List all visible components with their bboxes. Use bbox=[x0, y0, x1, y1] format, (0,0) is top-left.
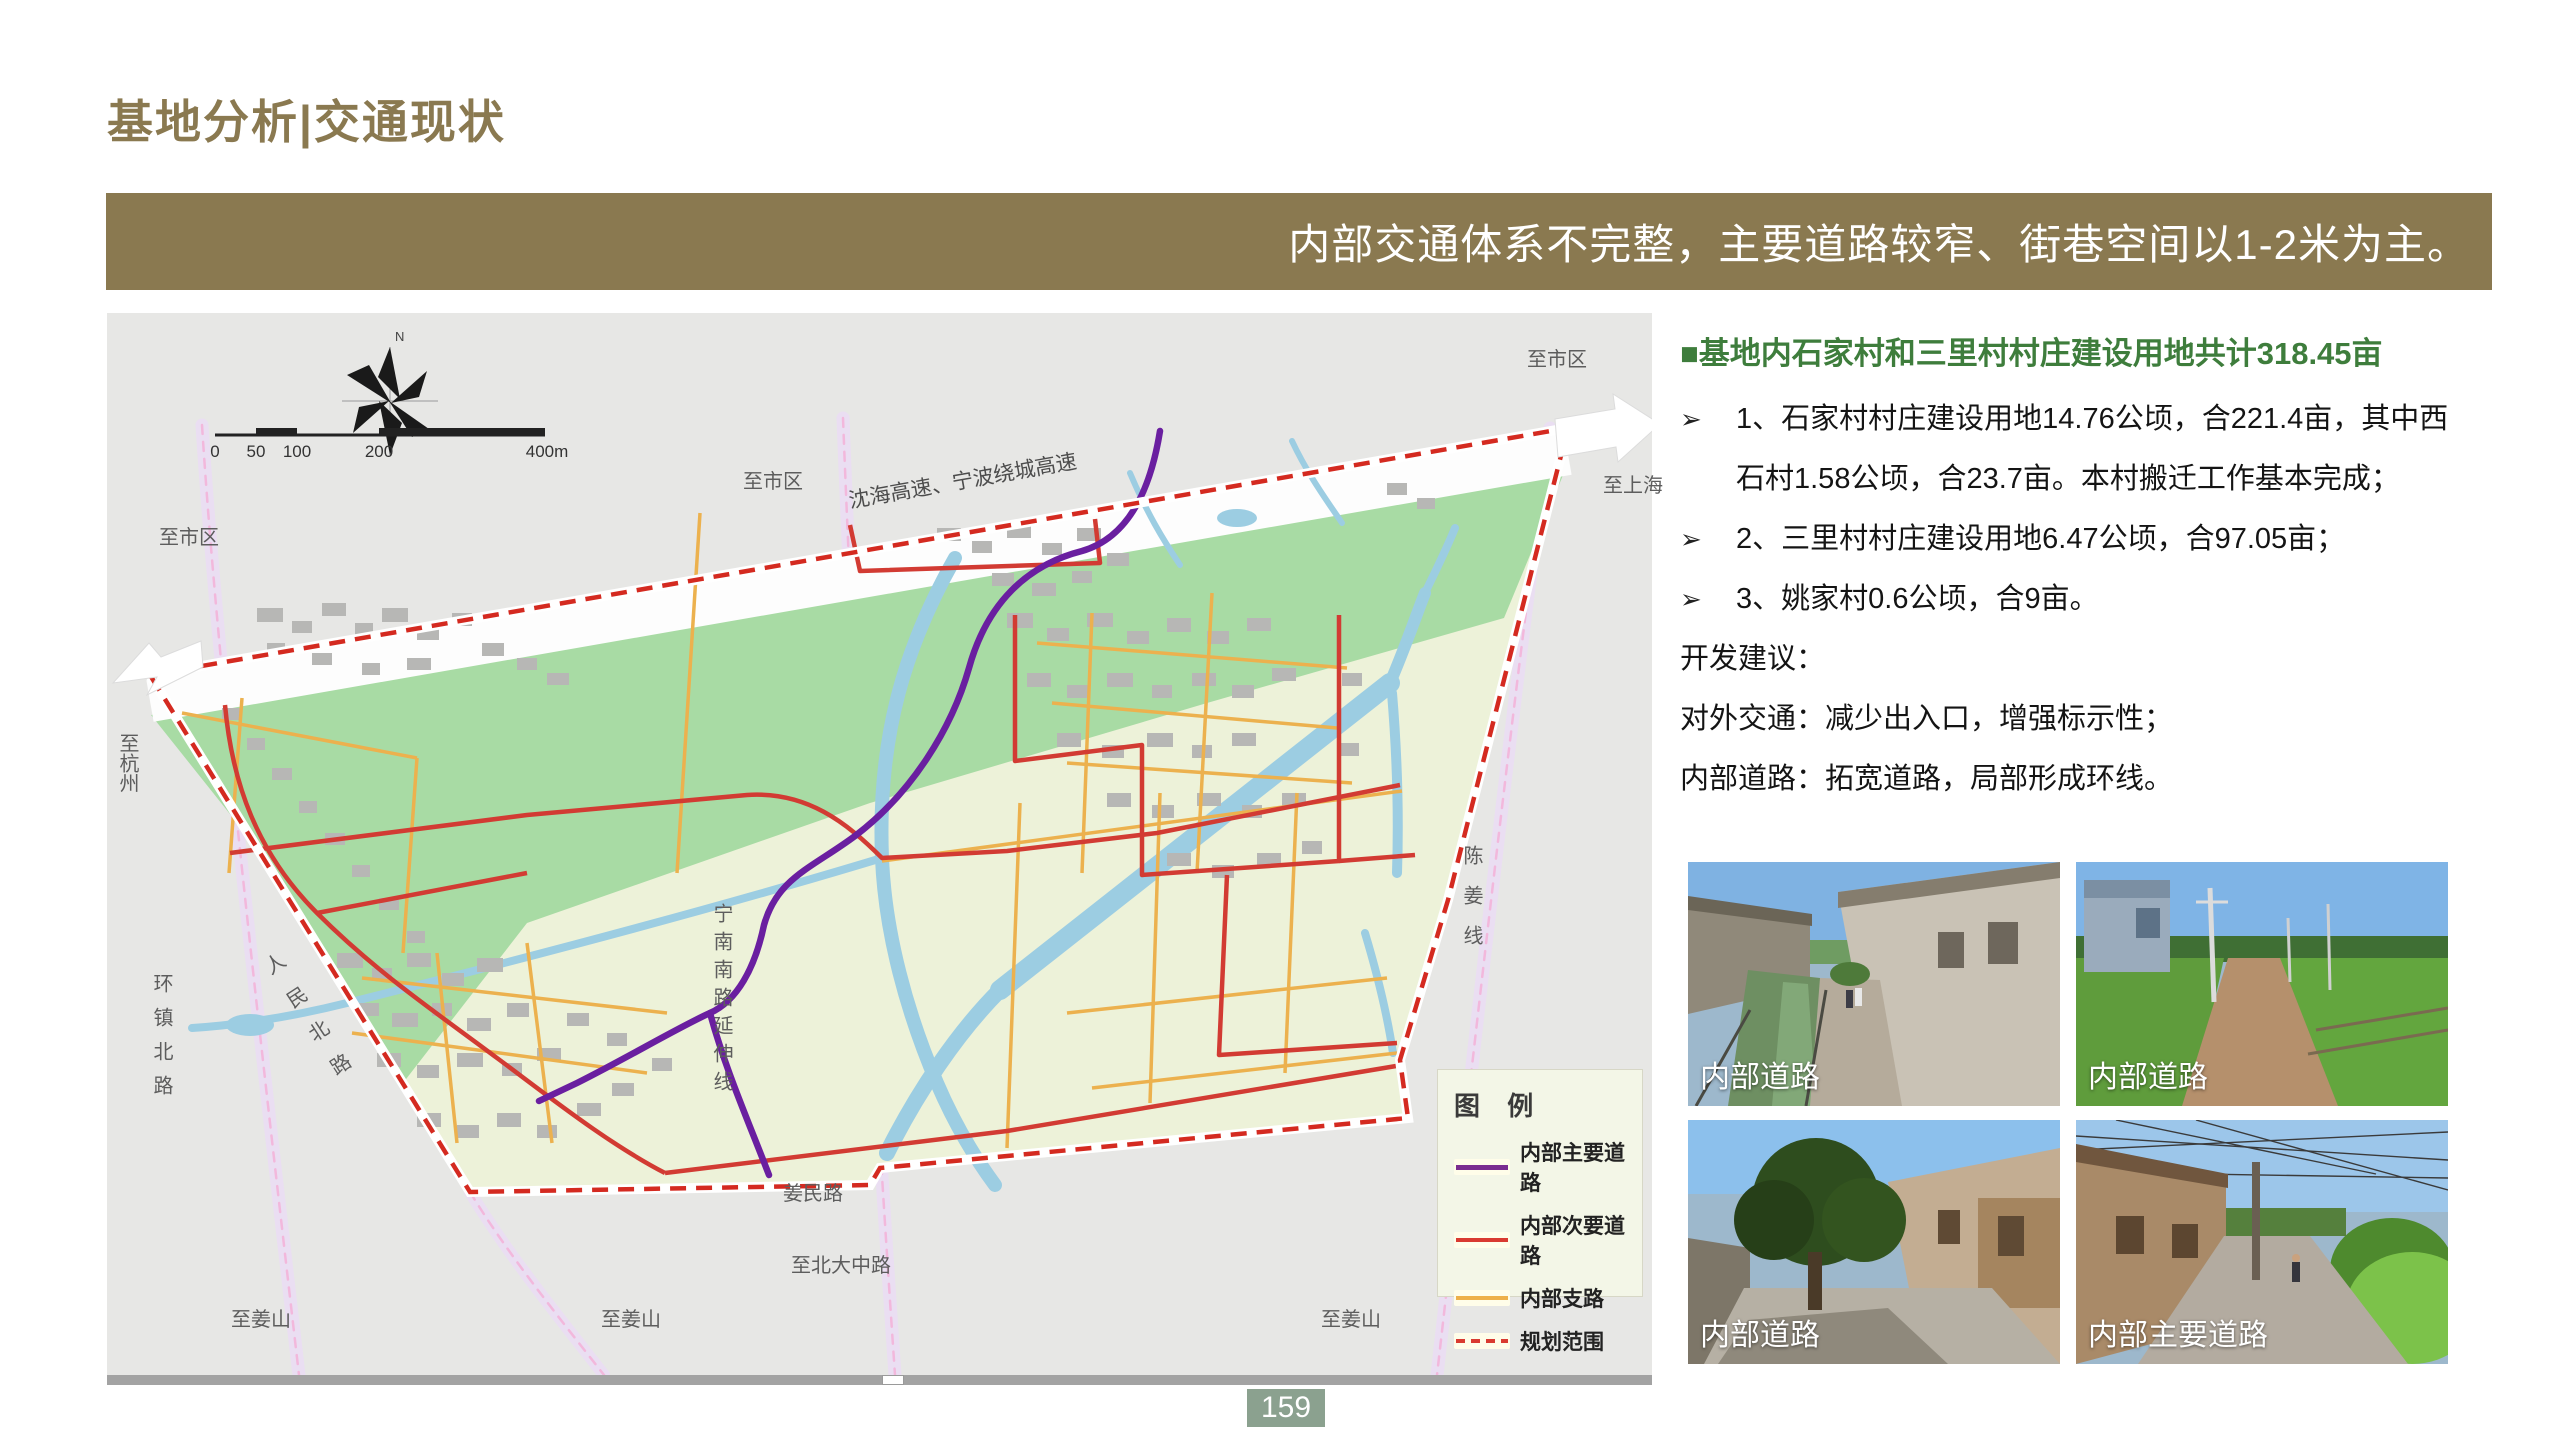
note-line: 内部道路：拓宽道路，局部形成环线。 bbox=[1680, 749, 2475, 809]
bullet-arrow-icon: ➢ bbox=[1680, 569, 1736, 629]
label-to-jiangshan-1: 至姜山 bbox=[231, 1303, 291, 1332]
label-to-city-2: 至市区 bbox=[743, 465, 803, 494]
main-road-swatch bbox=[1454, 1159, 1510, 1175]
label-to-beidazhong-road: 至北大中路 bbox=[791, 1249, 891, 1278]
branch-road-swatch bbox=[1454, 1290, 1510, 1306]
label-chenjiang-line: 陈姜线 bbox=[1457, 845, 1486, 965]
photo-main-road: 内部主要道路 bbox=[2076, 1120, 2448, 1364]
page-number-badge: 159 bbox=[1247, 1389, 1325, 1427]
scale-tick-200: 200 bbox=[365, 442, 393, 461]
slide: 基地分析|交通现状 内部交通体系不完整，主要道路较窄、街巷空间以1-2米为主。 bbox=[0, 0, 2560, 1440]
photo-canal-road: 内部道路 bbox=[1688, 862, 2060, 1106]
list-item: ➢ 1、石家村村庄建设用地14.76公顷，合221.4亩，其中西石村1.58公顷… bbox=[1680, 389, 2475, 509]
map-drawing: N 0 50 100 200 400m bbox=[107, 313, 1652, 1375]
map-bottom-notch bbox=[882, 1375, 904, 1385]
label-huanzhen-north-road: 环镇北路 bbox=[147, 973, 176, 1109]
analysis-text-panel: ■基地内石家村和三里村村庄建设用地共计318.45亩 ➢ 1、石家村村庄建设用地… bbox=[1680, 328, 2475, 809]
page-title: 基地分析|交通现状 bbox=[107, 86, 506, 152]
legend-item-main-road: 内部主要道路 bbox=[1454, 1137, 1628, 1197]
legend-item-boundary: 规划范围 bbox=[1454, 1326, 1628, 1356]
label-to-city-3: 至市区 bbox=[1527, 343, 1587, 372]
scale-tick-400: 400m bbox=[526, 442, 569, 461]
photo-grid: 内部道路 内部道路 bbox=[1688, 862, 2448, 1370]
legend-item-branch-road: 内部支路 bbox=[1454, 1283, 1628, 1313]
label-to-city-1: 至市区 bbox=[159, 521, 219, 550]
legend-title: 图 例 bbox=[1454, 1086, 1628, 1123]
label-ningnan-road-extension: 宁南南路延伸线 bbox=[707, 903, 736, 1099]
label-to-jiangshan-3: 至姜山 bbox=[1321, 1303, 1381, 1332]
scale-tick-50: 50 bbox=[247, 442, 266, 461]
bullet-arrow-icon: ➢ bbox=[1680, 389, 1736, 509]
secondary-road-swatch bbox=[1454, 1232, 1510, 1248]
photo-field-road: 内部道路 bbox=[2076, 862, 2448, 1106]
key-message-banner: 内部交通体系不完整，主要道路较窄、街巷空间以1-2米为主。 bbox=[106, 193, 2492, 290]
photo-caption: 内部道路 bbox=[1700, 1052, 1820, 1096]
note-line: 对外交通：减少出入口，增强标示性； bbox=[1680, 689, 2475, 749]
map-legend: 图 例 内部主要道路 内部次要道路 内部支路 规划范围 bbox=[1437, 1069, 1643, 1297]
map-bottom-edge bbox=[107, 1375, 1652, 1385]
note-line: 开发建议： bbox=[1680, 629, 2475, 689]
photo-caption: 内部道路 bbox=[1700, 1310, 1820, 1354]
legend-item-secondary-road: 内部次要道路 bbox=[1454, 1210, 1628, 1270]
scale-tick-0: 0 bbox=[210, 442, 219, 461]
list-item: ➢ 3、姚家村0.6公顷，合9亩。 bbox=[1680, 569, 2475, 629]
page-number: 159 bbox=[1261, 1391, 1311, 1425]
photo-caption: 内部主要道路 bbox=[2088, 1310, 2268, 1354]
bullet-arrow-icon: ➢ bbox=[1680, 509, 1736, 569]
photo-village-alley: 内部道路 bbox=[1688, 1120, 2060, 1364]
scale-tick-100: 100 bbox=[283, 442, 311, 461]
list-item: ➢ 2、三里村村庄建设用地6.47公顷，合97.05亩； bbox=[1680, 509, 2475, 569]
photo-caption: 内部道路 bbox=[2088, 1052, 2208, 1096]
label-jiangmin-road: 姜民路 bbox=[783, 1177, 843, 1206]
label-to-jiangshan-2: 至姜山 bbox=[601, 1303, 661, 1332]
boundary-swatch bbox=[1454, 1333, 1510, 1349]
traffic-analysis-map[interactable]: N 0 50 100 200 400m 至市区 至市区 至市区 沈海高速、宁波绕… bbox=[107, 313, 1652, 1385]
label-to-hangzhou: 至杭州 bbox=[113, 733, 142, 793]
label-to-shanghai: 至上海 bbox=[1603, 469, 1663, 498]
banner-text: 内部交通体系不完整，主要道路较窄、街巷空间以1-2米为主。 bbox=[1288, 211, 2470, 272]
compass-n-label: N bbox=[395, 329, 404, 344]
panel-heading: ■基地内石家村和三里村村庄建设用地共计318.45亩 bbox=[1680, 328, 2475, 373]
